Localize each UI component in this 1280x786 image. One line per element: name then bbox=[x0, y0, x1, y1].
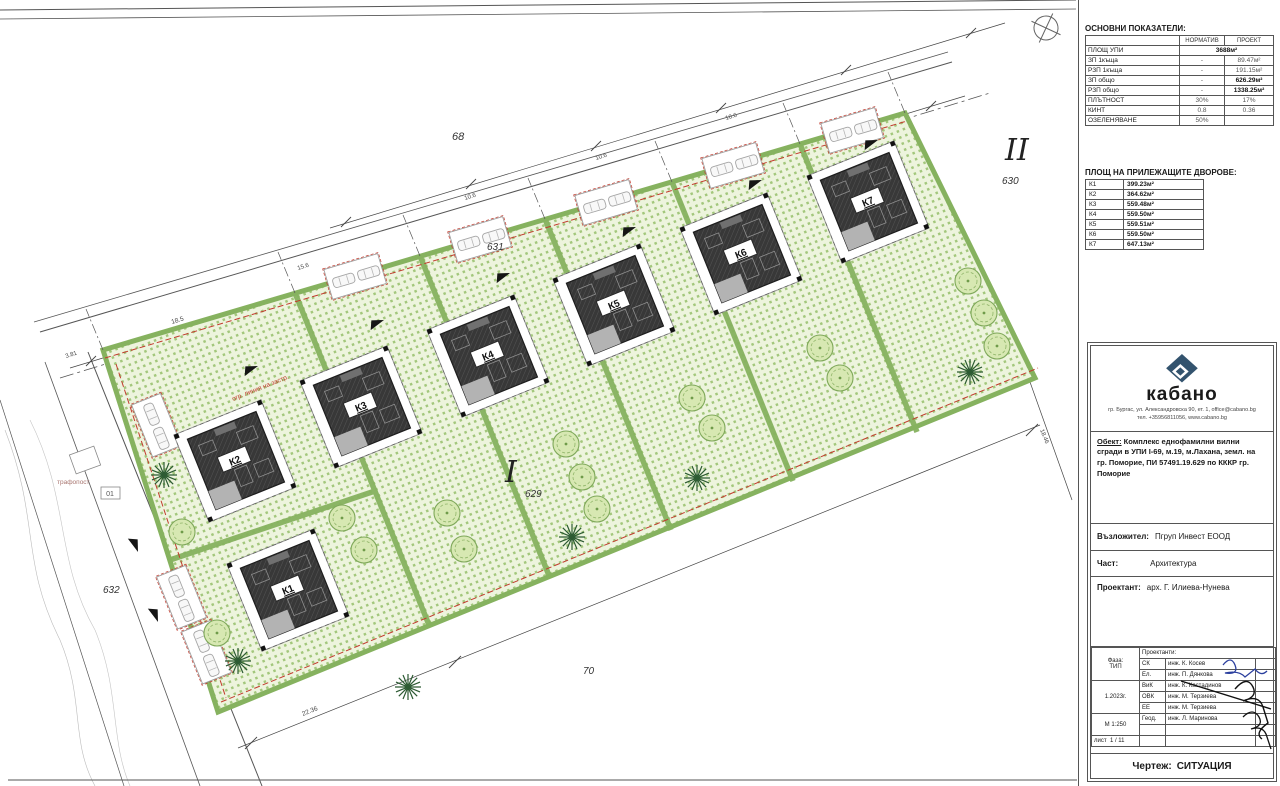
table-row: КИНТ 0.8 0.36 bbox=[1086, 106, 1274, 116]
col-proekt: ПРОЕКТ bbox=[1225, 36, 1274, 46]
table-row: К6559.50м² bbox=[1086, 230, 1204, 240]
deciduous-tree-icon bbox=[451, 536, 477, 562]
dim-106b: 10.6 bbox=[595, 153, 609, 162]
road-68-lines bbox=[0, 0, 1076, 19]
yards-title: ПЛОЩ НА ПРИЛЕЖАЩИТЕ ДВОРОВЕ: bbox=[1085, 168, 1275, 177]
deciduous-tree-icon bbox=[955, 268, 981, 294]
table-row: РЗП 1къща - 191.15м² bbox=[1086, 66, 1274, 76]
table-row: ПЛЪТНОСТ 30% 17% bbox=[1086, 96, 1274, 106]
drawing-label: Чертеж: bbox=[1132, 761, 1171, 772]
object-label: Обект: bbox=[1097, 437, 1122, 446]
north-symbol-icon bbox=[1025, 7, 1068, 50]
deciduous-tree-icon bbox=[434, 500, 460, 526]
conifer-tree-icon bbox=[559, 524, 585, 550]
team-grid-section: Фаза: ТИП Проектанти: СК инж. К. Косев Е… bbox=[1091, 646, 1273, 753]
col-normativ: НОРМАТИВ bbox=[1180, 36, 1225, 46]
object-section: Обект: Комплекс еднофамилни вилни сгради… bbox=[1091, 431, 1273, 524]
transformer-number: 01 bbox=[106, 491, 114, 498]
sheet-cell: лист 1 / 11 bbox=[1092, 736, 1140, 747]
deciduous-tree-icon bbox=[329, 505, 355, 531]
date-cell: 1.2023г. bbox=[1092, 681, 1140, 714]
phase-cell: Фаза: ТИП bbox=[1092, 648, 1140, 681]
client-name: Пгруп Инвест ЕООД bbox=[1155, 532, 1230, 541]
indicators-table: НОРМАТИВ ПРОЕКТ ПЛОЩ УПИ 3688м² ЗП 1къща… bbox=[1085, 35, 1274, 126]
conifer-tree-icon bbox=[151, 462, 177, 488]
deciduous-tree-icon bbox=[584, 496, 610, 522]
conifer-tree-icon bbox=[684, 465, 710, 491]
road-631-label: 631 bbox=[487, 242, 504, 253]
scale-cell: М 1:250 bbox=[1092, 714, 1140, 736]
dim-156: 15.6 bbox=[297, 263, 311, 272]
part-section: Част: Архитектура bbox=[1091, 550, 1273, 577]
table-row: К3559.48м² bbox=[1086, 200, 1204, 210]
yards-table: К1399.23м² К2364.62м² К3559.48м² К4559.5… bbox=[1085, 179, 1204, 250]
team-row: М 1:250 Геод. инж. Л. Маринова bbox=[1092, 714, 1276, 725]
table-row: ЗП общо - 626.29м² bbox=[1086, 76, 1274, 86]
conifer-tree-icon bbox=[395, 674, 421, 700]
deciduous-tree-icon bbox=[204, 620, 230, 646]
parcel-629-label: 629 bbox=[525, 489, 542, 500]
client-label: Възложител: bbox=[1097, 532, 1149, 541]
deciduous-tree-icon bbox=[351, 537, 377, 563]
deciduous-tree-icon bbox=[984, 333, 1010, 359]
table-row: К2364.62м² bbox=[1086, 190, 1204, 200]
dim-1846: 18.46 bbox=[1038, 429, 1049, 446]
drawing-name-section: Чертеж: СИТУАЦИЯ bbox=[1091, 753, 1273, 778]
drawing-sheet: трафопост 01 К1 К2 К3 bbox=[0, 0, 1280, 786]
company-name: кабано bbox=[1146, 385, 1217, 404]
table-row: РЗП общо - 1338.25м² bbox=[1086, 86, 1274, 96]
road-632-label: 632 bbox=[103, 585, 120, 596]
dim-106c: 10.6 bbox=[725, 113, 739, 122]
table-row: ПЛОЩ УПИ 3688м² bbox=[1086, 46, 1274, 56]
conifer-tree-icon bbox=[225, 648, 251, 674]
client-section: Възложител: Пгруп Инвест ЕООД bbox=[1091, 523, 1273, 550]
conifer-tree-icon bbox=[957, 359, 983, 385]
designer-section: Проектант: арх. Г. Илиева-Нунева bbox=[1091, 576, 1273, 646]
deciduous-tree-icon bbox=[553, 431, 579, 457]
table-row: К1399.23м² bbox=[1086, 180, 1204, 190]
road-68-label: 68 bbox=[452, 131, 465, 143]
title-block: кабано гр. Бургас, ул. Александровска 90… bbox=[1087, 342, 1277, 782]
zone-i-label: I bbox=[504, 455, 518, 490]
dim-2236: 22.36 bbox=[301, 705, 319, 718]
deciduous-tree-icon bbox=[807, 335, 833, 361]
deciduous-tree-icon bbox=[569, 464, 595, 490]
right-panel: ОСНОВНИ ПОКАЗАТЕЛИ: НОРМАТИВ ПРОЕКТ ПЛОЩ… bbox=[1078, 0, 1280, 786]
deciduous-tree-icon bbox=[169, 519, 195, 545]
indicators-title: ОСНОВНИ ПОКАЗАТЕЛИ: bbox=[1085, 24, 1275, 33]
designer-name: арх. Г. Илиева-Нунева bbox=[1147, 583, 1230, 592]
part-name: Архитектура bbox=[1150, 559, 1196, 568]
drawing-name: СИТУАЦИЯ bbox=[1177, 761, 1232, 772]
zone-ii-label: II bbox=[1004, 133, 1030, 168]
team-header: Проектанти: bbox=[1140, 648, 1276, 659]
team-table: Фаза: ТИП Проектанти: СК инж. К. Косев Е… bbox=[1091, 647, 1276, 747]
dim-381: 3.81 bbox=[65, 351, 79, 360]
parcel-70-label: 70 bbox=[583, 666, 595, 677]
table-row: ЗП 1къща - 89.47м² bbox=[1086, 56, 1274, 66]
yards-table-section: ПЛОЩ НА ПРИЛЕЖАЩИТЕ ДВОРОВЕ: К1399.23м² … bbox=[1085, 168, 1275, 250]
deciduous-tree-icon bbox=[827, 365, 853, 391]
dim-106a: 10.6 bbox=[464, 193, 478, 202]
transformer-label: трафопост bbox=[57, 479, 90, 486]
transformer-station: трафопост 01 bbox=[57, 446, 120, 499]
deciduous-tree-icon bbox=[699, 415, 725, 441]
company-address: гр. Бургас, ул. Александровска 90, ет. 1… bbox=[1097, 407, 1267, 422]
deciduous-tree-icon bbox=[971, 300, 997, 326]
kabano-logo-icon bbox=[1165, 354, 1199, 384]
deciduous-tree-icon bbox=[679, 385, 705, 411]
site-plan: трафопост 01 К1 К2 К3 bbox=[0, 0, 1078, 786]
table-row: ОЗЕЛЕНЯВАНЕ 50% bbox=[1086, 116, 1274, 126]
parcel-630-label: 630 bbox=[1002, 176, 1019, 187]
part-label: Част: bbox=[1097, 559, 1118, 568]
team-row: 1.2023г. ВиК инж. К. Кастадинов bbox=[1092, 681, 1276, 692]
table-row: К7647.13м² bbox=[1086, 240, 1204, 250]
table-row: К4559.50м² bbox=[1086, 210, 1204, 220]
designer-label: Проектант: bbox=[1097, 583, 1141, 592]
table-row: К5559.51м² bbox=[1086, 220, 1204, 230]
company-logo-section: кабано гр. Бургас, ул. Александровска 90… bbox=[1091, 346, 1273, 431]
indicators-table-section: ОСНОВНИ ПОКАЗАТЕЛИ: НОРМАТИВ ПРОЕКТ ПЛОЩ… bbox=[1085, 24, 1275, 126]
